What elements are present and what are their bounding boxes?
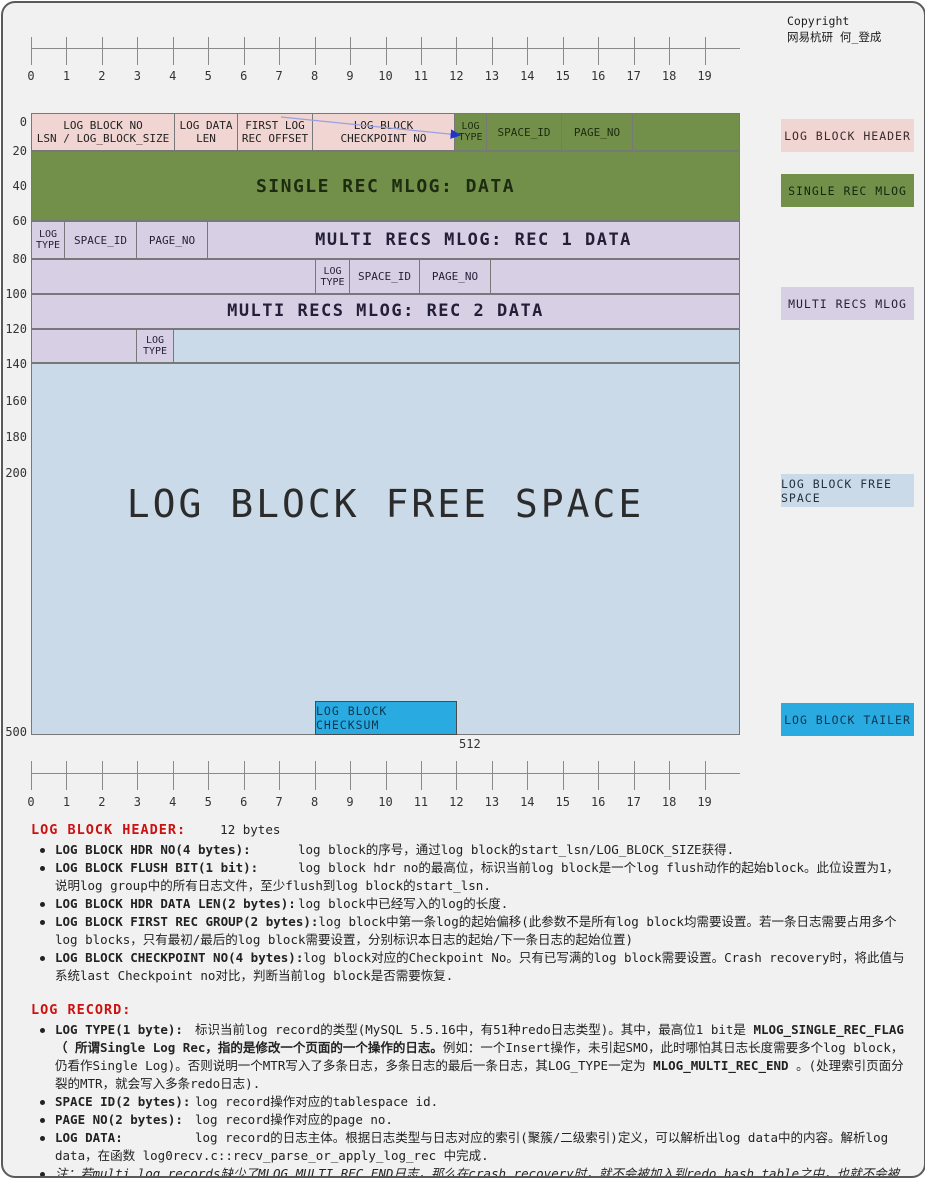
note-prefix: 注：: [55, 1166, 80, 1178]
tick-mark: [31, 773, 32, 790]
ruler-number: 14: [520, 69, 534, 83]
tick-mark: [705, 773, 706, 790]
ruler-number: 6: [240, 69, 247, 83]
tick-mark: [66, 761, 67, 773]
tick-mark: [386, 773, 387, 790]
tick-mark: [705, 37, 706, 48]
tick-mark: [669, 761, 670, 773]
cell-space-id: SPACE_ID: [487, 113, 562, 151]
cell-space-id: SPACE_ID: [350, 259, 420, 294]
tick-mark: [634, 761, 635, 773]
tick-mark: [350, 761, 351, 773]
scale-label: 120: [3, 322, 27, 336]
bullet-label: LOG BLOCK HDR DATA LEN(2 bytes):: [55, 895, 298, 913]
tick-mark: [386, 761, 387, 773]
scale-label: 80: [3, 252, 27, 266]
cell-label: LOG: [39, 229, 57, 240]
legend-single-rec-mlog: SINGLE REC MLOG: [781, 174, 914, 207]
copyright-line2: 网易杭研 何_登成: [787, 29, 881, 45]
tick-mark: [563, 773, 564, 790]
ruler-number: 19: [697, 795, 711, 809]
legend-label: SINGLE REC MLOG: [788, 184, 907, 198]
tick-mark: [31, 48, 32, 65]
ruler-number: 2: [98, 69, 105, 83]
bullet-page-no: PAGE NO(2 bytes):log record操作对应的page no.: [31, 1111, 908, 1129]
bullet-label: LOG BLOCK FIRST REC GROUP(2 bytes):: [55, 913, 318, 931]
cell-log-type: LOG TYPE: [316, 259, 350, 294]
ruler-number: 0: [27, 69, 34, 83]
bullet-flush-bit: LOG BLOCK FLUSH BIT(1 bit):log block hdr…: [31, 859, 908, 895]
scale-label: 180: [3, 430, 27, 444]
tick-mark: [315, 773, 316, 790]
cell-empty: [31, 329, 137, 363]
tick-mark: [421, 761, 422, 773]
cell-log-type: LOG TYPE: [137, 329, 174, 363]
tick-mark: [598, 37, 599, 48]
bullet-space-id: SPACE ID(2 bytes):log record操作对应的tablesp…: [31, 1093, 908, 1111]
legend-log-block-tailer: LOG BLOCK TAILER: [781, 703, 914, 736]
bullet-log-type: LOG TYPE(1 byte):标识当前log record的类型(MySQL…: [31, 1021, 908, 1093]
ruler-number: 18: [662, 795, 676, 809]
tick-mark: [456, 37, 457, 48]
ruler-number: 13: [485, 795, 499, 809]
cell-single-rec-data: SINGLE REC MLOG: DATA: [31, 151, 740, 221]
tick-mark: [173, 37, 174, 48]
legend-label: LOG BLOCK TAILER: [784, 713, 911, 727]
bullet-label: PAGE NO(2 bytes):: [55, 1111, 195, 1129]
tick-mark: [208, 773, 209, 790]
record-section-title: LOG RECORD:: [31, 1002, 131, 1018]
ruler-number: 17: [626, 795, 640, 809]
tick-mark: [208, 761, 209, 773]
ruler-number: 19: [697, 69, 711, 83]
bullet-label: LOG TYPE(1 byte):: [55, 1021, 195, 1039]
bullet-label: LOG BLOCK CHECKPOINT NO(4 bytes):: [55, 949, 303, 967]
bullet-note: 注：若multi log records缺少了MLOG_MULTI_REC_EN…: [31, 1165, 908, 1178]
tick-mark: [350, 773, 351, 790]
ruler-number: 7: [276, 69, 283, 83]
ruler-number: 2: [98, 795, 105, 809]
tick-mark: [279, 48, 280, 65]
tick-mark: [527, 773, 528, 790]
ruler-number: 1: [63, 795, 70, 809]
tick-mark: [31, 761, 32, 773]
tick-mark: [244, 37, 245, 48]
ruler-number: 4: [169, 795, 176, 809]
tick-mark: [208, 37, 209, 48]
ruler-number: 15: [556, 69, 570, 83]
tick-mark: [669, 48, 670, 65]
ruler-number: 10: [378, 69, 392, 83]
scale-label: 160: [3, 394, 27, 408]
bullet-hdr-data-len: LOG BLOCK HDR DATA LEN(2 bytes):log bloc…: [31, 895, 908, 913]
record-section-title-row: LOG RECORD:: [31, 1001, 908, 1019]
log-type-arrow: [273, 109, 473, 143]
tick-mark: [279, 773, 280, 790]
tick-mark: [634, 48, 635, 65]
tick-mark: [279, 761, 280, 773]
bullet-desc-bold: MLOG_MULTI_REC_END: [653, 1058, 788, 1073]
tick-mark: [421, 37, 422, 48]
log-block-free-space: LOG BLOCK FREE SPACE: [31, 363, 740, 735]
rec2-data-label: MULTI RECS MLOG: REC 2 DATA: [227, 305, 544, 318]
tick-mark: [173, 761, 174, 773]
single-rec-label: SINGLE REC MLOG: DATA: [256, 180, 515, 193]
cell-label: SPACE_ID: [498, 126, 551, 139]
tick-mark: [137, 761, 138, 773]
cell-label: PAGE_NO: [574, 126, 620, 139]
tick-mark: [173, 48, 174, 65]
scale-label: 0: [3, 115, 27, 129]
ruler-number: 9: [346, 69, 353, 83]
tick-mark: [208, 48, 209, 65]
tick-mark: [244, 48, 245, 65]
bullet-desc: log record操作对应的tablespace id.: [195, 1094, 438, 1109]
record-section-bullets: LOG TYPE(1 byte):标识当前log record的类型(MySQL…: [31, 1021, 908, 1178]
ruler-number: 4: [169, 69, 176, 83]
tick-mark: [456, 773, 457, 790]
tick-mark: [421, 48, 422, 65]
scale-label: 500: [3, 725, 27, 739]
scale-label: 20: [3, 144, 27, 158]
tick-mark: [102, 773, 103, 790]
scale-label: 140: [3, 357, 27, 371]
multi-rec2-header-row: LOG TYPE SPACE_ID PAGE_NO: [31, 259, 740, 294]
ruler-number: 8: [311, 69, 318, 83]
cell-empty: [633, 113, 740, 151]
tick-mark: [634, 37, 635, 48]
ruler-number: 12: [449, 69, 463, 83]
cell-label: LEN: [196, 132, 216, 145]
ruler-number: 14: [520, 795, 534, 809]
tick-mark: [315, 761, 316, 773]
tick-mark: [421, 773, 422, 790]
tick-mark: [598, 761, 599, 773]
tail-partial-row: LOG TYPE: [31, 329, 740, 363]
cell-log-data-len: LOG DATA LEN: [175, 113, 238, 151]
legend-log-block-header: LOG BLOCK HEADER: [781, 119, 914, 152]
tick-mark: [456, 761, 457, 773]
bullet-checkpoint-no: LOG BLOCK CHECKPOINT NO(4 bytes):log blo…: [31, 949, 908, 985]
scale-label: 100: [3, 287, 27, 301]
tick-mark: [279, 37, 280, 48]
bottom-ruler: 0 1 2 3 4 5: [31, 751, 740, 813]
tick-mark: [350, 48, 351, 65]
cell-label: SPACE_ID: [358, 270, 411, 283]
free-space-label: LOG BLOCK FREE SPACE: [32, 482, 739, 526]
legend-label: MULTI RECS MLOG: [788, 297, 907, 311]
bullet-first-rec-group: LOG BLOCK FIRST REC GROUP(2 bytes):log b…: [31, 913, 908, 949]
bullet-label: LOG BLOCK FLUSH BIT(1 bit):: [55, 859, 298, 877]
tick-mark: [669, 37, 670, 48]
bullet-hdr-no: LOG BLOCK HDR NO(4 bytes):log block的序号，通…: [31, 841, 908, 859]
header-section-size: 12 bytes: [220, 822, 280, 837]
cell-label: PAGE_NO: [432, 270, 478, 283]
ruler-number: 11: [414, 69, 428, 83]
ruler-number: 7: [276, 795, 283, 809]
cell-empty: [491, 259, 740, 294]
log-block-diagram-page: Copyright 网易杭研 何_登成 0 1 2 3: [1, 1, 925, 1178]
tick-mark: [705, 48, 706, 65]
cell-label: LOG: [146, 335, 164, 346]
header-section-title: LOG BLOCK HEADER:: [31, 822, 186, 838]
tick-mark: [386, 48, 387, 65]
tick-mark: [66, 37, 67, 48]
cell-log-block-no: LOG BLOCK NO LSN / LOG_BLOCK_SIZE: [31, 113, 175, 151]
bullet-label: SPACE ID(2 bytes):: [55, 1093, 195, 1111]
ruler-number: 10: [378, 795, 392, 809]
ruler-number: 16: [591, 69, 605, 83]
tick-mark: [315, 37, 316, 48]
ruler-number: 8: [311, 795, 318, 809]
legend-label: LOG BLOCK HEADER: [784, 129, 911, 143]
cell-label: TYPE: [143, 346, 167, 357]
tick-mark: [66, 48, 67, 65]
top-ruler: 0 1 2 3 4 5: [31, 33, 740, 89]
bullet-desc: 标识当前log record的类型(MySQL 5.5.16中，有51种redo…: [195, 1022, 753, 1037]
tick-mark: [563, 48, 564, 65]
tick-mark: [598, 773, 599, 790]
ruler-number: 15: [556, 795, 570, 809]
tick-mark: [492, 37, 493, 48]
copyright-line1: Copyright: [787, 13, 881, 29]
tick-mark: [563, 37, 564, 48]
tick-mark: [137, 48, 138, 65]
bullet-desc: log block中已经写入的log的长度.: [298, 896, 508, 911]
ruler-number: 3: [134, 795, 141, 809]
cell-label: SPACE_ID: [74, 234, 127, 247]
cell-page-no: PAGE_NO: [137, 221, 208, 259]
scale-label: 60: [3, 214, 27, 228]
description-text: LOG BLOCK HEADER:12 bytes LOG BLOCK HDR …: [31, 821, 908, 1178]
ruler-number: 5: [205, 69, 212, 83]
tick-mark: [634, 773, 635, 790]
cell-rec1-data: MULTI RECS MLOG: REC 1 DATA: [208, 221, 740, 259]
cell-label: TYPE: [36, 240, 60, 251]
scale-label: 200: [3, 466, 27, 480]
cell-page-no: PAGE_NO: [420, 259, 491, 294]
checksum-label: LOG BLOCK CHECKSUM: [316, 704, 456, 732]
multi-rec2-data-row: MULTI RECS MLOG: REC 2 DATA: [31, 294, 740, 329]
cell-label: LOG DATA: [180, 119, 233, 132]
ruler-number: 1: [63, 69, 70, 83]
tick-mark: [173, 773, 174, 790]
tick-mark: [492, 761, 493, 773]
note-text: 若multi log records缺少了MLOG_MULTI_REC_END日…: [55, 1166, 899, 1178]
tick-mark: [102, 37, 103, 48]
ruler-number: 3: [134, 69, 141, 83]
ruler-number: 0: [27, 795, 34, 809]
ruler-number: 18: [662, 69, 676, 83]
tick-mark: [492, 48, 493, 65]
cell-space-id: SPACE_ID: [65, 221, 137, 259]
scale-label: 40: [3, 179, 27, 193]
tick-mark: [386, 37, 387, 48]
bullet-desc: log record操作对应的page no.: [195, 1112, 393, 1127]
cell-label: PAGE_NO: [149, 234, 195, 247]
cell-label: TYPE: [320, 277, 344, 288]
ruler-number: 6: [240, 795, 247, 809]
cell-label: LSN / LOG_BLOCK_SIZE: [37, 132, 169, 145]
cell-rec2-data: MULTI RECS MLOG: REC 2 DATA: [31, 294, 740, 329]
bullet-log-data: LOG DATA:log record的日志主体。根据日志类型与日志对应的索引(…: [31, 1129, 908, 1165]
tick-mark: [527, 761, 528, 773]
bullet-desc: log block的序号，通过log block的start_lsn/LOG_B…: [298, 842, 734, 857]
header-section-bullets: LOG BLOCK HDR NO(4 bytes):log block的序号，通…: [31, 841, 908, 985]
tick-mark: [492, 773, 493, 790]
legend-log-block-free-space: LOG BLOCK FREE SPACE: [781, 474, 914, 507]
ruler-number: 11: [414, 795, 428, 809]
tick-mark: [563, 761, 564, 773]
cell-log-type: LOG TYPE: [31, 221, 65, 259]
tick-mark: [350, 37, 351, 48]
bullet-label: LOG DATA:: [55, 1129, 195, 1147]
ruler-number: 9: [346, 795, 353, 809]
header-section-title-row: LOG BLOCK HEADER:12 bytes: [31, 821, 908, 839]
tick-mark: [598, 48, 599, 65]
tick-mark: [102, 48, 103, 65]
cell-label: LOG BLOCK NO: [63, 119, 142, 132]
tick-mark: [669, 773, 670, 790]
tick-mark: [102, 761, 103, 773]
tick-mark: [456, 48, 457, 65]
cell-label: LOG: [323, 266, 341, 277]
bullet-label: LOG BLOCK HDR NO(4 bytes):: [55, 841, 298, 859]
ruler-number: 5: [205, 795, 212, 809]
tick-mark: [527, 48, 528, 65]
rec1-data-label: MULTI RECS MLOG: REC 1 DATA: [315, 234, 632, 247]
cell-free-space-start: [174, 329, 740, 363]
copyright: Copyright 网易杭研 何_登成: [787, 13, 881, 45]
tick-mark: [137, 37, 138, 48]
ruler-number: 13: [485, 69, 499, 83]
cell-page-no: PAGE_NO: [562, 113, 633, 151]
legend-multi-recs-mlog: MULTI RECS MLOG: [781, 287, 914, 320]
tick-mark: [315, 48, 316, 65]
single-rec-mlog-row: SINGLE REC MLOG: DATA: [31, 151, 740, 221]
cell-empty: [31, 259, 316, 294]
scale-end-label: 512: [459, 737, 481, 751]
ruler-number: 16: [591, 795, 605, 809]
tick-mark: [244, 773, 245, 790]
multi-rec1-row: LOG TYPE SPACE_ID PAGE_NO MULTI RECS MLO…: [31, 221, 740, 259]
tick-mark: [66, 773, 67, 790]
ruler-number: 17: [626, 69, 640, 83]
tick-mark: [31, 37, 32, 48]
log-block-checksum: LOG BLOCK CHECKSUM: [315, 701, 457, 735]
tick-mark: [705, 761, 706, 773]
ruler-number: 12: [449, 795, 463, 809]
tick-mark: [137, 773, 138, 790]
tick-mark: [527, 37, 528, 48]
tick-mark: [244, 761, 245, 773]
legend-label: LOG BLOCK FREE SPACE: [781, 477, 914, 505]
